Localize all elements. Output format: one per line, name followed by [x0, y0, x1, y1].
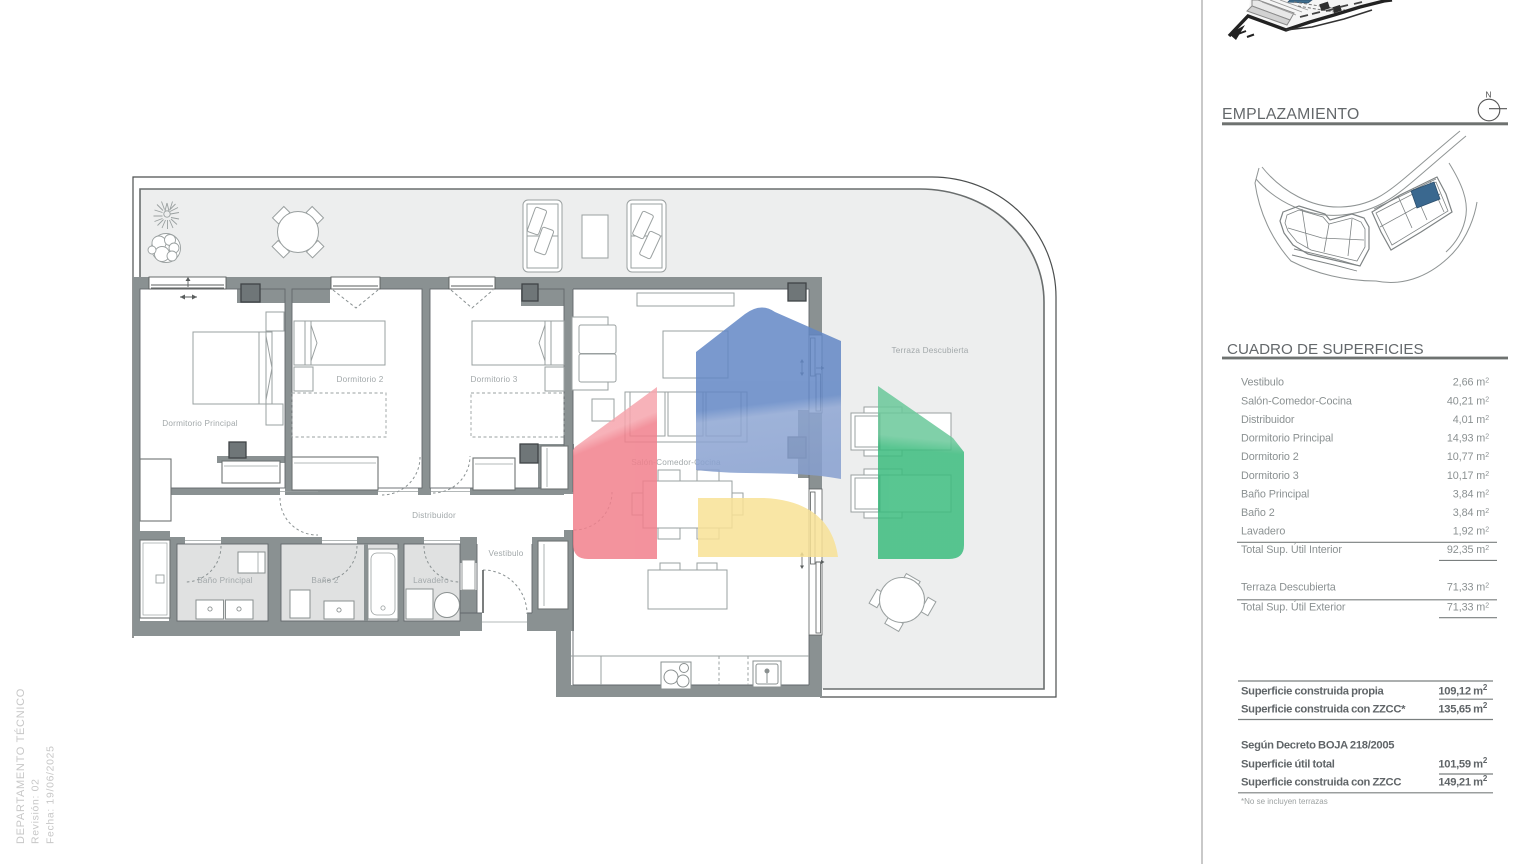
svg-text:DEPARTAMENTO TÉCNICO: DEPARTAMENTO TÉCNICO	[14, 688, 27, 844]
svg-text:149,21 m2: 149,21 m2	[1438, 774, 1487, 789]
svg-text:14,93 m2: 14,93 m2	[1447, 433, 1489, 445]
svg-text:Dormitorio 2: Dormitorio 2	[1241, 451, 1299, 463]
svg-text:3,84 m2: 3,84 m2	[1453, 507, 1489, 519]
svg-text:Según Decreto BOJA 218/2005: Según Decreto BOJA 218/2005	[1241, 740, 1394, 752]
svg-text:Fecha: 19/06/2025: Fecha: 19/06/2025	[46, 745, 57, 844]
svg-text:N: N	[1485, 90, 1491, 100]
svg-text:Vestibulo: Vestibulo	[1241, 377, 1284, 389]
svg-text:Baño Principal: Baño Principal	[197, 576, 253, 585]
svg-text:71,33 m2: 71,33 m2	[1447, 601, 1489, 613]
svg-text:2,66 m2: 2,66 m2	[1453, 377, 1489, 389]
svg-text:Dormitorio Principal: Dormitorio Principal	[1241, 433, 1333, 445]
svg-text:Baño 2: Baño 2	[1241, 507, 1275, 519]
svg-text:135,65 m2: 135,65 m2	[1438, 701, 1487, 716]
svg-text:CUADRO DE SUPERFICIES: CUADRO DE SUPERFICIES	[1227, 341, 1424, 358]
svg-text:Superficie construida propia: Superficie construida propia	[1241, 685, 1385, 697]
svg-text:Superficie construida con ZZCC: Superficie construida con ZZCC*	[1241, 703, 1406, 715]
svg-text:Dormitorio 3: Dormitorio 3	[471, 375, 518, 384]
svg-text:Baño 2: Baño 2	[311, 576, 338, 585]
svg-text:40,21 m2: 40,21 m2	[1447, 395, 1489, 407]
svg-text:Lavadero: Lavadero	[1241, 526, 1285, 538]
svg-text:Total Sup. Útil Interior: Total Sup. Útil Interior	[1241, 543, 1342, 556]
svg-text:10,17 m2: 10,17 m2	[1447, 470, 1489, 482]
svg-text:109,12 m2: 109,12 m2	[1438, 683, 1487, 698]
svg-text:Dormitorio Principal: Dormitorio Principal	[162, 419, 237, 428]
svg-text:Distribuidor: Distribuidor	[412, 511, 456, 520]
svg-text:1,92 m2: 1,92 m2	[1453, 526, 1489, 538]
svg-text:Total Sup. Útil Exterior: Total Sup. Útil Exterior	[1241, 600, 1346, 613]
svg-text:Terraza Descubierta: Terraza Descubierta	[1241, 582, 1336, 594]
svg-text:92,35 m2: 92,35 m2	[1447, 544, 1489, 556]
svg-text:Dormitorio 2: Dormitorio 2	[337, 375, 384, 384]
svg-text:Superficie útil total: Superficie útil total	[1241, 758, 1335, 770]
svg-text:Lavadero: Lavadero	[413, 576, 449, 585]
svg-text:10,77 m2: 10,77 m2	[1447, 451, 1489, 463]
svg-text:Dormitorio 3: Dormitorio 3	[1241, 470, 1299, 482]
svg-text:EMPLAZAMIENTO: EMPLAZAMIENTO	[1222, 106, 1359, 123]
svg-text:Revisión: 02: Revisión: 02	[31, 778, 42, 844]
svg-text:Vestibulo: Vestibulo	[488, 549, 523, 558]
svg-text:Terraza Descubierta: Terraza Descubierta	[891, 346, 968, 355]
svg-text:71,33 m2: 71,33 m2	[1447, 582, 1489, 594]
svg-text:4,01 m2: 4,01 m2	[1453, 414, 1489, 426]
svg-text:Superficie construida con ZZCC: Superficie construida con ZZCC	[1241, 776, 1401, 788]
svg-text:Distribuidor: Distribuidor	[1241, 414, 1295, 426]
svg-text:*No se incluyen terrazas: *No se incluyen terrazas	[1241, 797, 1328, 806]
svg-text:101,59 m2: 101,59 m2	[1438, 756, 1487, 771]
svg-text:Baño Principal: Baño Principal	[1241, 489, 1309, 501]
svg-text:Salón-Comedor-Cocina: Salón-Comedor-Cocina	[1241, 395, 1352, 407]
svg-text:3,84 m2: 3,84 m2	[1453, 489, 1489, 501]
